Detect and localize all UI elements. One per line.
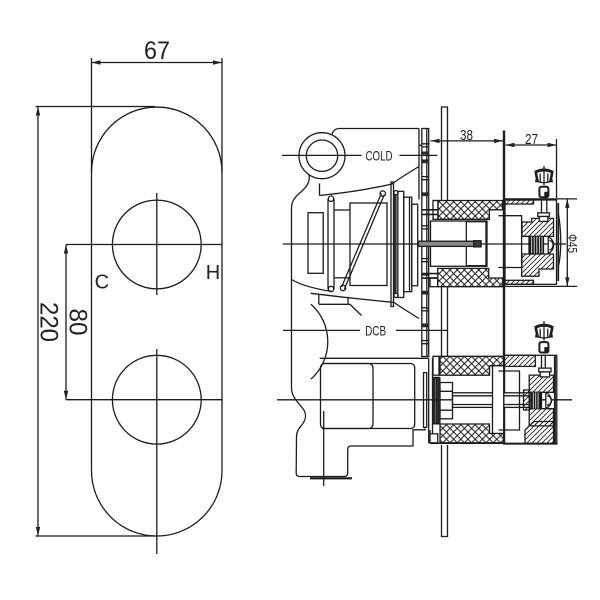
svg-text:C: C (95, 272, 109, 294)
svg-text:38: 38 (460, 127, 473, 144)
svg-text:80: 80 (64, 309, 92, 336)
svg-text:DCB: DCB (365, 322, 386, 338)
svg-text:220: 220 (35, 302, 63, 342)
svg-text:Φ45: Φ45 (565, 234, 580, 253)
svg-text:H: H (206, 262, 220, 284)
svg-text:COLD: COLD (366, 147, 393, 163)
svg-text:27: 27 (525, 131, 538, 148)
svg-text:67: 67 (144, 37, 170, 65)
